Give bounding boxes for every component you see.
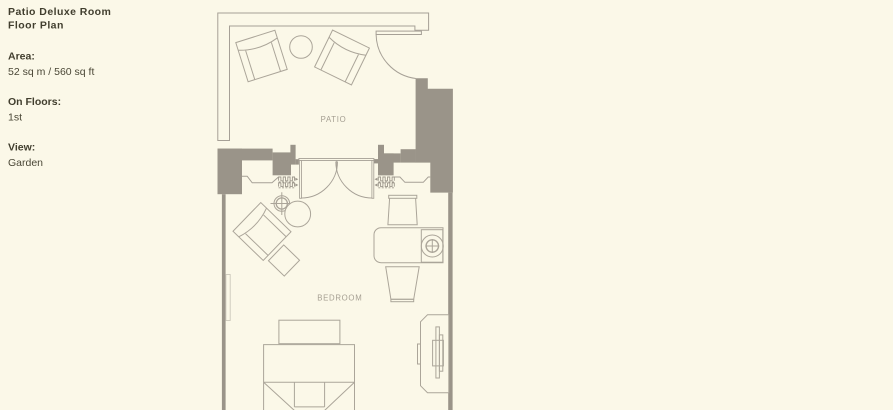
svg-text:BEDROOM: BEDROOM [317,293,362,302]
svg-text:PATIO: PATIO [321,115,347,124]
svg-text:On Floors:: On Floors: [8,96,61,108]
svg-text:52 sq m / 560 sq ft: 52 sq m / 560 sq ft [8,66,94,78]
svg-text:1st: 1st [8,111,22,123]
svg-text:Area:: Area: [8,51,35,63]
svg-text:Garden: Garden [8,157,43,169]
svg-text:Patio Deluxe Room: Patio Deluxe Room [8,6,111,18]
svg-text:Floor Plan: Floor Plan [8,20,64,32]
svg-text:View:: View: [8,142,35,154]
